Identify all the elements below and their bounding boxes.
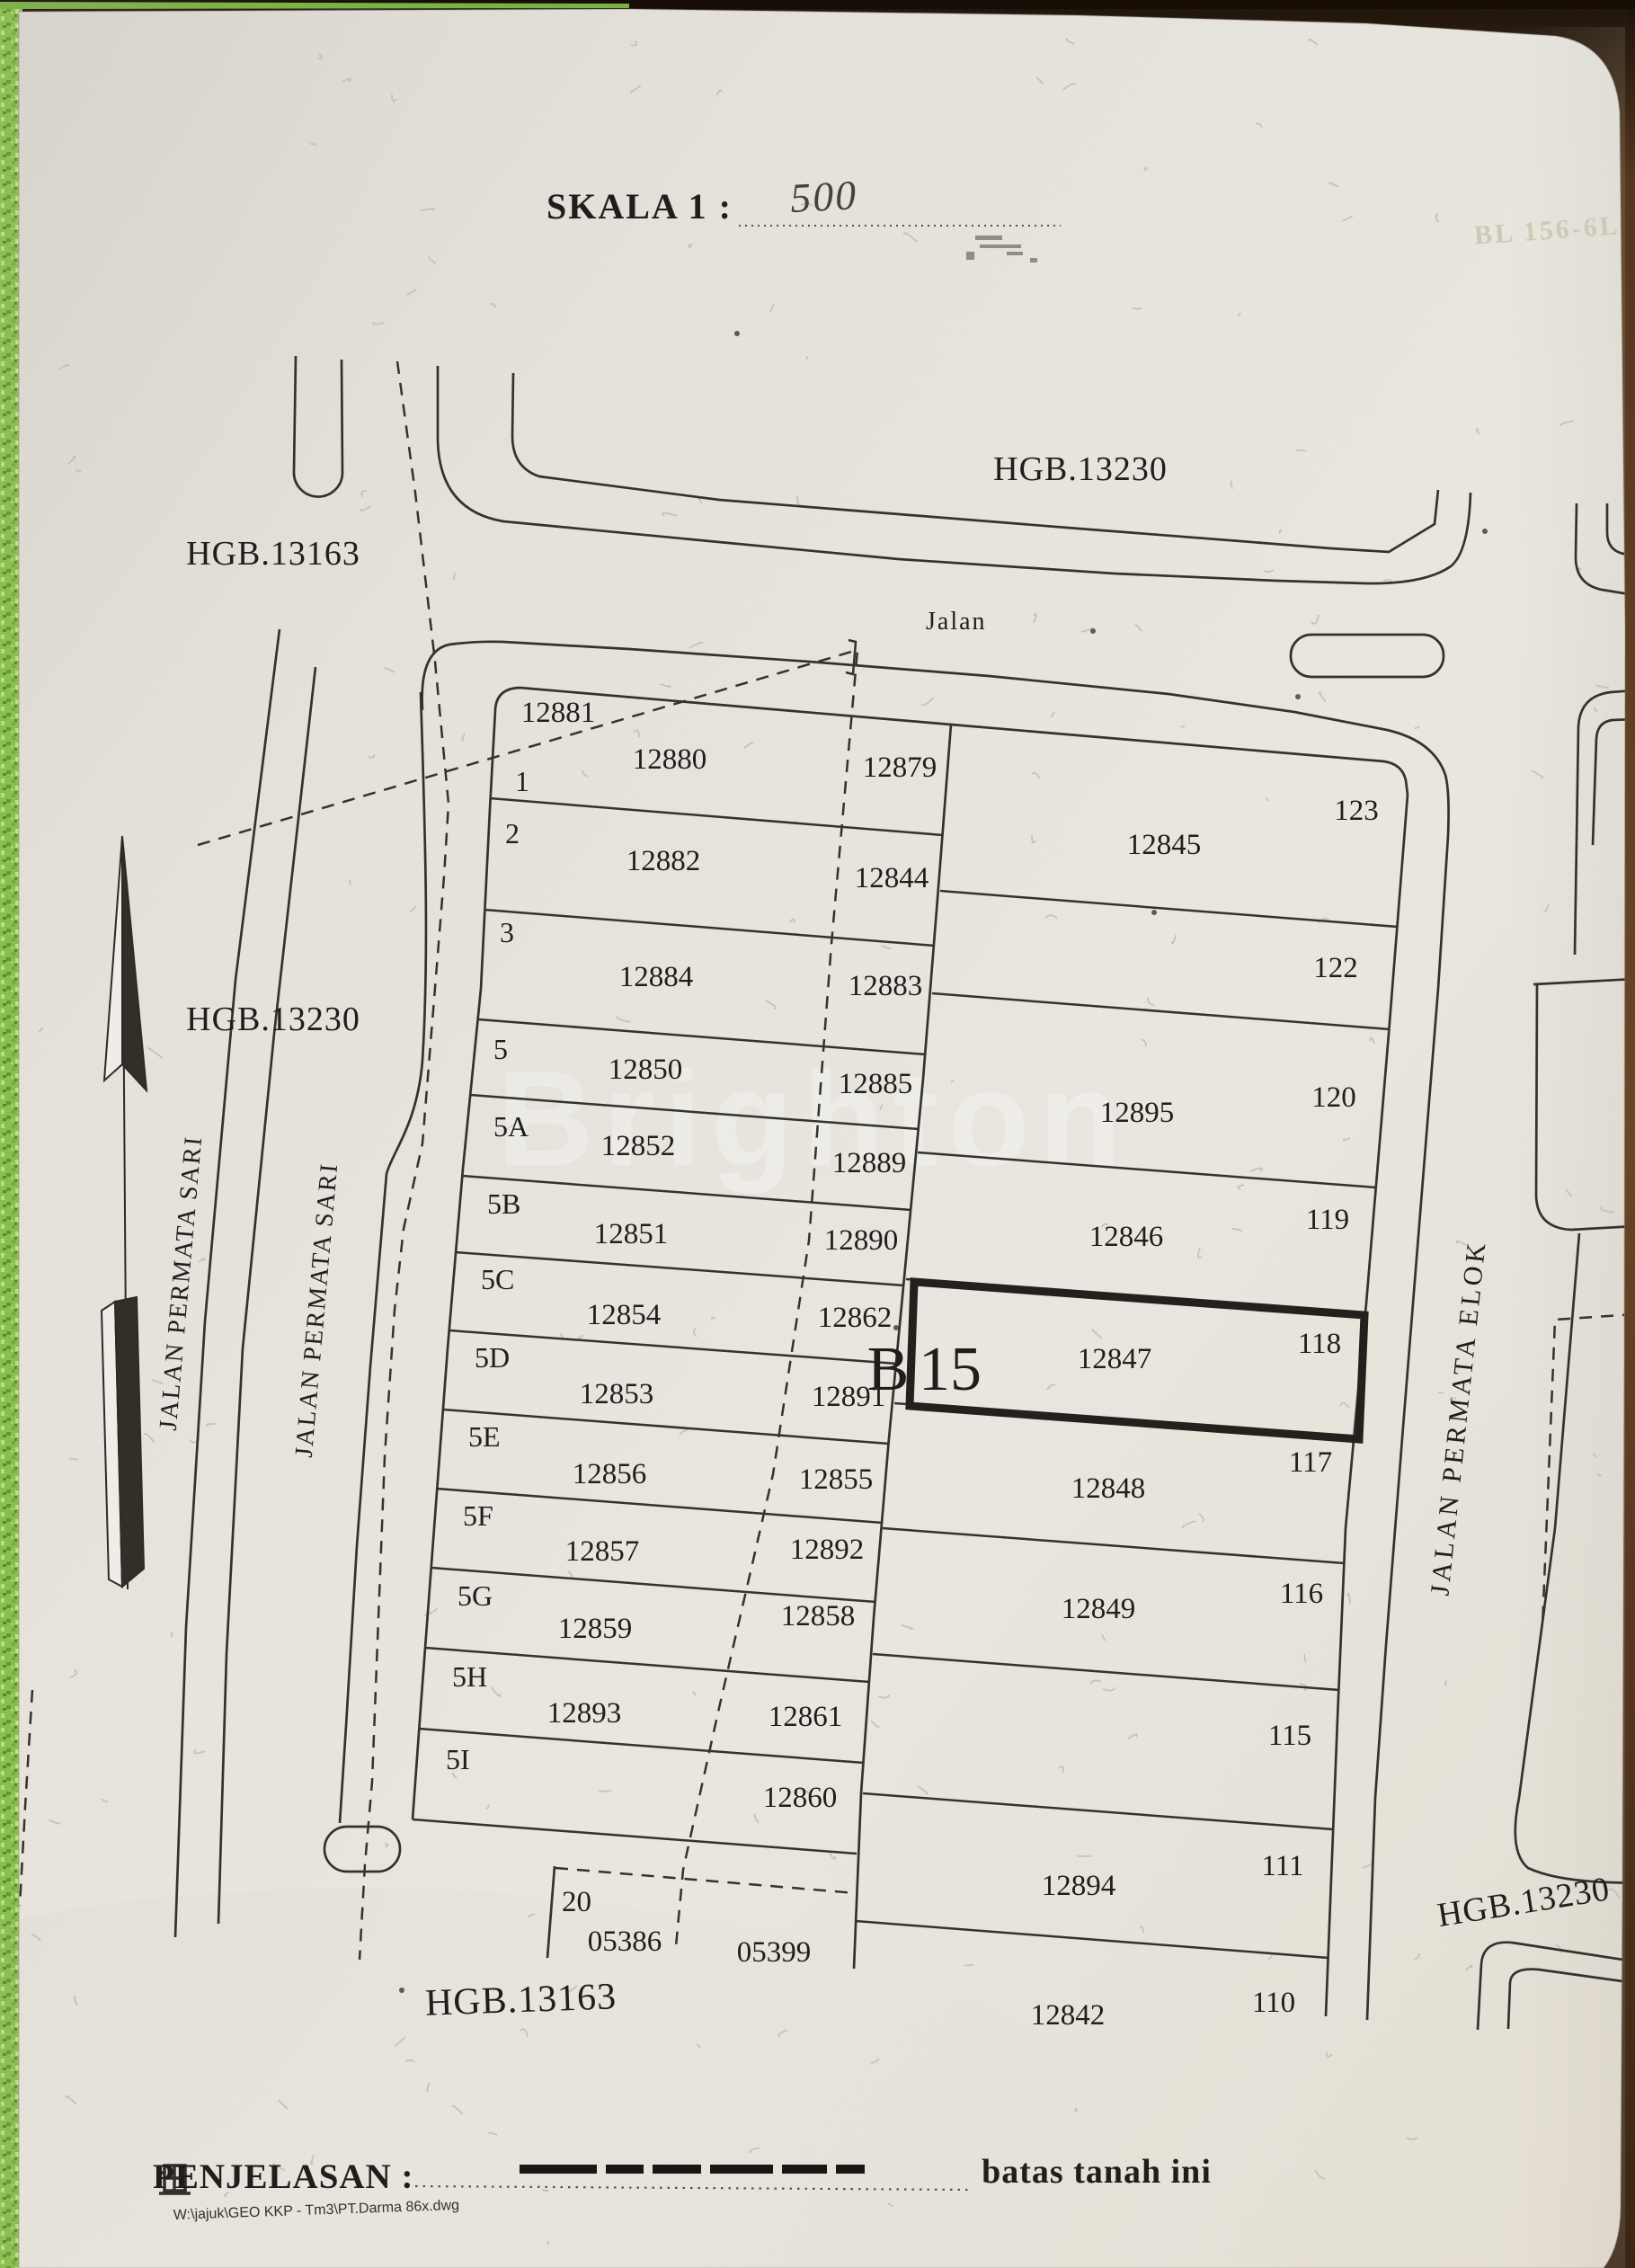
svg-text:12854: 12854 xyxy=(587,1299,662,1331)
svg-text:12857: 12857 xyxy=(565,1535,640,1568)
svg-text:12852: 12852 xyxy=(601,1130,676,1162)
svg-text:12855: 12855 xyxy=(799,1463,874,1496)
svg-text:12849: 12849 xyxy=(1062,1593,1136,1625)
svg-text:12889: 12889 xyxy=(832,1147,907,1179)
svg-text:111: 111 xyxy=(1261,1850,1303,1882)
svg-text:12853: 12853 xyxy=(580,1378,654,1410)
svg-text:05386: 05386 xyxy=(588,1926,662,1958)
svg-text:122: 122 xyxy=(1313,952,1358,984)
svg-text:12846: 12846 xyxy=(1089,1221,1164,1253)
svg-text:12858: 12858 xyxy=(781,1600,856,1632)
svg-text:20: 20 xyxy=(562,1886,591,1918)
svg-text:2: 2 xyxy=(505,817,520,849)
svg-text:119: 119 xyxy=(1306,1204,1349,1236)
svg-text:12894: 12894 xyxy=(1042,1870,1116,1902)
svg-text:12880: 12880 xyxy=(633,743,707,776)
svg-text:5E: 5E xyxy=(468,1420,501,1453)
svg-text:12844: 12844 xyxy=(855,862,929,894)
svg-text:12883: 12883 xyxy=(849,970,923,1002)
svg-text:110: 110 xyxy=(1252,1987,1295,2019)
svg-text:5I: 5I xyxy=(446,1743,470,1775)
svg-text:12882: 12882 xyxy=(626,845,701,877)
svg-text:1: 1 xyxy=(515,765,529,797)
svg-text:Jalan: Jalan xyxy=(926,608,987,636)
svg-text:HGB.13163: HGB.13163 xyxy=(424,1976,618,2023)
svg-text:5F: 5F xyxy=(463,1499,493,1532)
svg-text:12850: 12850 xyxy=(609,1054,683,1086)
svg-text:123: 123 xyxy=(1334,795,1379,827)
svg-text:12860: 12860 xyxy=(763,1782,838,1814)
svg-text:B: B xyxy=(867,1335,910,1404)
svg-text:05399: 05399 xyxy=(737,1936,812,1969)
svg-text:3: 3 xyxy=(500,916,514,948)
svg-text:SKALA 1 :: SKALA 1 : xyxy=(546,186,733,227)
svg-text:5A: 5A xyxy=(493,1110,529,1143)
svg-text:5: 5 xyxy=(493,1033,508,1065)
svg-text:12892: 12892 xyxy=(790,1534,865,1566)
svg-text:500: 500 xyxy=(789,172,859,221)
svg-text:5G: 5G xyxy=(458,1579,493,1612)
svg-text:5B: 5B xyxy=(487,1187,520,1220)
svg-text:12885: 12885 xyxy=(839,1068,913,1100)
svg-text:12861: 12861 xyxy=(769,1701,843,1733)
svg-text:5H: 5H xyxy=(452,1660,487,1693)
svg-text:115: 115 xyxy=(1268,1720,1311,1752)
svg-text:116: 116 xyxy=(1280,1578,1323,1610)
svg-text:12884: 12884 xyxy=(619,961,694,993)
svg-text:12881: 12881 xyxy=(521,697,596,729)
svg-text:5C: 5C xyxy=(481,1263,514,1295)
svg-text:120: 120 xyxy=(1311,1081,1356,1114)
svg-text:12842: 12842 xyxy=(1031,1999,1106,2032)
svg-text:12851: 12851 xyxy=(594,1218,669,1250)
svg-text:PENJELASAN :: PENJELASAN : xyxy=(153,2157,413,2196)
svg-text:HGB.13230: HGB.13230 xyxy=(186,1001,360,1038)
svg-text:batas tanah ini: batas tanah ini xyxy=(982,2153,1212,2191)
svg-text:HGB.13230: HGB.13230 xyxy=(993,450,1168,488)
svg-text:HGB.13163: HGB.13163 xyxy=(186,535,360,573)
svg-text:12848: 12848 xyxy=(1071,1472,1146,1505)
svg-text:12879: 12879 xyxy=(863,752,937,784)
svg-text:12895: 12895 xyxy=(1100,1097,1175,1129)
svg-text:12856: 12856 xyxy=(573,1458,647,1490)
svg-text:5D: 5D xyxy=(475,1341,510,1374)
svg-text:15: 15 xyxy=(919,1335,982,1404)
svg-text:118: 118 xyxy=(1298,1328,1341,1360)
svg-text:12845: 12845 xyxy=(1127,829,1202,861)
svg-text:12859: 12859 xyxy=(558,1613,633,1645)
svg-text:12847: 12847 xyxy=(1078,1343,1152,1375)
svg-text:12890: 12890 xyxy=(824,1224,899,1257)
svg-text:117: 117 xyxy=(1289,1446,1332,1479)
svg-text:12862: 12862 xyxy=(818,1302,893,1334)
svg-text:12893: 12893 xyxy=(547,1697,622,1730)
